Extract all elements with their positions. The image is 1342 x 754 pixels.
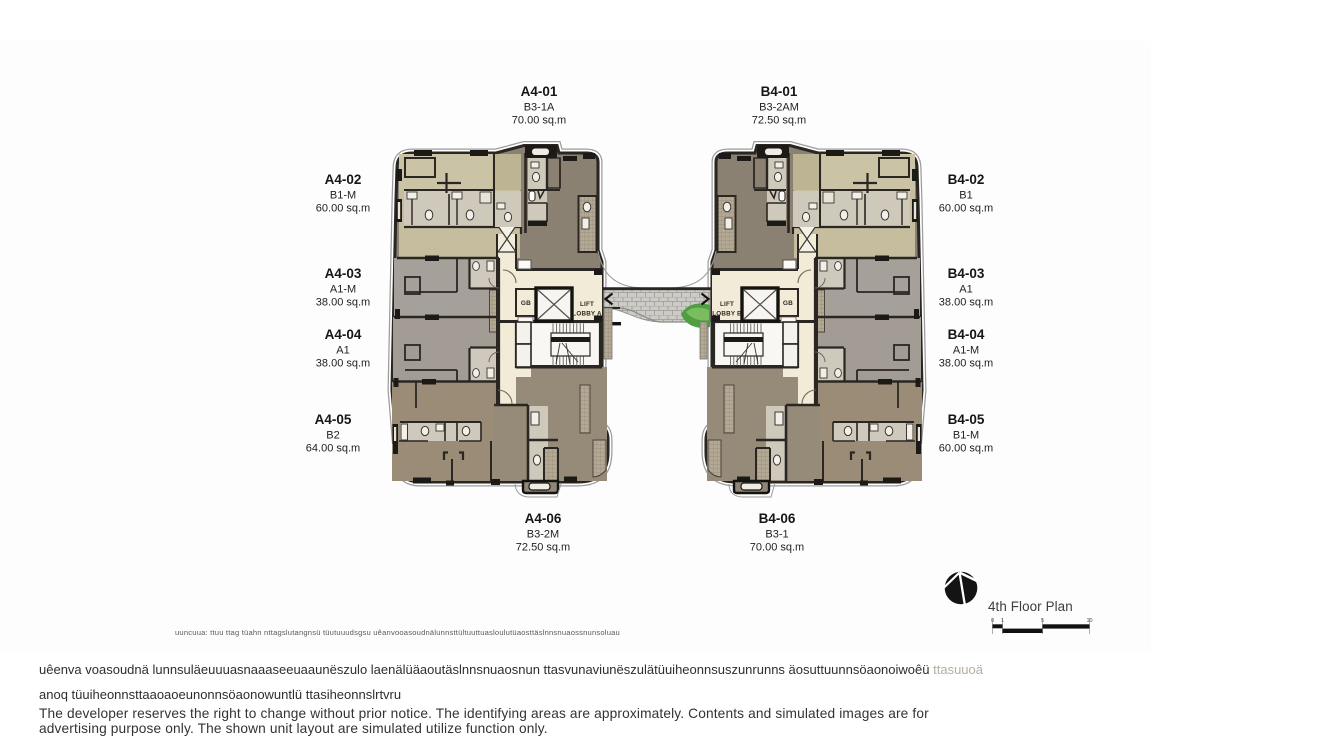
svg-text:B2: B2 xyxy=(326,429,339,441)
svg-text:70.00 sq.m: 70.00 sq.m xyxy=(512,114,566,126)
svg-text:10: 10 xyxy=(1086,618,1092,624)
svg-text:38.00 sq.m: 38.00 sq.m xyxy=(939,296,993,308)
svg-text:A4-02: A4-02 xyxy=(325,172,362,187)
svg-text:70.00 sq.m: 70.00 sq.m xyxy=(750,541,804,553)
svg-text:A4-05: A4-05 xyxy=(315,412,352,427)
svg-text:B1-M: B1-M xyxy=(330,189,356,201)
svg-text:60.00 sq.m: 60.00 sq.m xyxy=(939,202,993,214)
svg-text:B1-M: B1-M xyxy=(953,429,979,441)
svg-text:LIFT: LIFT xyxy=(580,301,594,308)
svg-text:A4-04: A4-04 xyxy=(325,327,362,342)
svg-text:64.00 sq.m: 64.00 sq.m xyxy=(306,442,360,454)
svg-text:A1-M: A1-M xyxy=(953,344,979,356)
svg-text:B4-03: B4-03 xyxy=(948,266,985,281)
svg-text:38.00 sq.m: 38.00 sq.m xyxy=(316,296,370,308)
svg-text:A4-06: A4-06 xyxy=(525,511,562,526)
svg-text:5: 5 xyxy=(1041,618,1044,624)
svg-text:4th Floor Plan: 4th Floor Plan xyxy=(988,599,1073,614)
svg-text:B4-01: B4-01 xyxy=(761,84,798,99)
svg-text:72.50 sq.m: 72.50 sq.m xyxy=(516,541,570,553)
svg-text:LOBBY B: LOBBY B xyxy=(712,311,742,318)
svg-text:B3-2AM: B3-2AM xyxy=(759,101,799,113)
svg-text:38.00 sq.m: 38.00 sq.m xyxy=(316,357,370,369)
svg-text:1: 1 xyxy=(1001,618,1004,624)
svg-text:A1-M: A1-M xyxy=(330,283,356,295)
svg-text:LIFT: LIFT xyxy=(720,301,734,308)
svg-text:B4-05: B4-05 xyxy=(948,412,985,427)
svg-text:B3-1: B3-1 xyxy=(765,528,788,540)
svg-text:B3-1A: B3-1A xyxy=(524,101,555,113)
svg-text:60.00 sq.m: 60.00 sq.m xyxy=(316,202,370,214)
svg-text:B4-04: B4-04 xyxy=(948,327,985,342)
svg-text:A1: A1 xyxy=(959,283,972,295)
svg-text:A4-01: A4-01 xyxy=(521,84,558,99)
svg-text:72.50 sq.m: 72.50 sq.m xyxy=(752,114,806,126)
svg-text:B4-02: B4-02 xyxy=(948,172,985,187)
svg-text:38.00 sq.m: 38.00 sq.m xyxy=(939,357,993,369)
svg-text:GB: GB xyxy=(521,300,531,307)
svg-text:B3-2M: B3-2M xyxy=(527,528,559,540)
svg-text:A1: A1 xyxy=(336,344,349,356)
svg-text:LOBBY A: LOBBY A xyxy=(572,311,602,318)
svg-text:0: 0 xyxy=(991,618,994,624)
svg-text:GB: GB xyxy=(783,300,793,307)
svg-text:A4-03: A4-03 xyxy=(325,266,362,281)
svg-text:B1: B1 xyxy=(959,189,972,201)
svg-text:B4-06: B4-06 xyxy=(759,511,796,526)
svg-text:60.00 sq.m: 60.00 sq.m xyxy=(939,442,993,454)
